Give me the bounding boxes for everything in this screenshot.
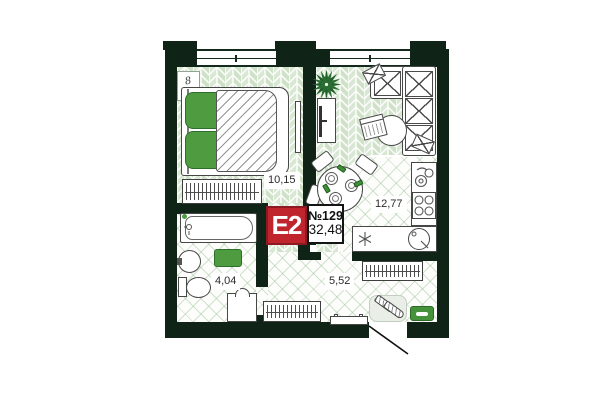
bench-knob xyxy=(334,314,338,317)
bed-duvet xyxy=(216,90,277,172)
bedroom-mirror xyxy=(295,101,301,153)
bedroom-wardrobe xyxy=(182,179,262,204)
doormat xyxy=(410,306,434,321)
wardrobe-rail xyxy=(365,271,420,272)
tv-foot xyxy=(322,120,327,122)
unit-total-area: 32,48 xyxy=(309,223,343,238)
wardrobe-rail xyxy=(266,312,318,313)
wall-corridor-stub-foot xyxy=(298,252,321,260)
wall-right xyxy=(437,49,449,338)
stove-burners-icon xyxy=(412,192,436,219)
sofa-cushion xyxy=(405,98,433,124)
bedroom-window xyxy=(197,49,276,67)
living-window xyxy=(330,49,410,67)
entry-door-swing xyxy=(366,324,412,358)
wall-kitchen-south xyxy=(352,252,437,261)
basin-tap-icon xyxy=(177,258,182,265)
round-sink-tap-icon xyxy=(408,228,430,250)
unit-type-text: E2 xyxy=(272,210,302,241)
window-mullion xyxy=(235,55,237,62)
hallway-area-label: 5,52 xyxy=(325,273,354,290)
bench xyxy=(330,316,368,325)
sofa-cushion xyxy=(405,71,433,97)
unit-type-badge: E2 xyxy=(266,206,307,245)
doormat-slot xyxy=(416,312,428,316)
wall-bottom-right xyxy=(407,322,449,338)
wall-left xyxy=(165,49,177,338)
wardrobe-rail xyxy=(185,192,259,193)
bath-tap-icon xyxy=(182,218,196,238)
bedroom-area-label: 10,15 xyxy=(264,172,300,189)
window-mullion xyxy=(369,55,371,62)
corner-mark-glyph: 8 xyxy=(184,76,192,88)
plant-icon xyxy=(310,68,343,101)
hob-asterisk-icon xyxy=(357,231,373,247)
unit-number: №129 xyxy=(308,210,343,224)
hallway-wardrobe-right xyxy=(362,261,423,281)
washing-machine xyxy=(227,293,257,322)
bath-plant-dot xyxy=(182,214,187,219)
plate xyxy=(325,172,338,185)
bath-mat xyxy=(214,249,242,267)
bathroom-area-label: 4,04 xyxy=(211,273,240,290)
living-area-label: 12,77 xyxy=(371,196,407,213)
floor-plan: 8 10,15 xyxy=(0,0,600,400)
toilet-bowl xyxy=(186,277,211,298)
unit-info-box: №129 32,48 xyxy=(307,204,344,244)
kitchen-sink-icon xyxy=(412,164,436,191)
bench-knob xyxy=(359,314,363,317)
hallway-wardrobe-left xyxy=(263,301,321,322)
